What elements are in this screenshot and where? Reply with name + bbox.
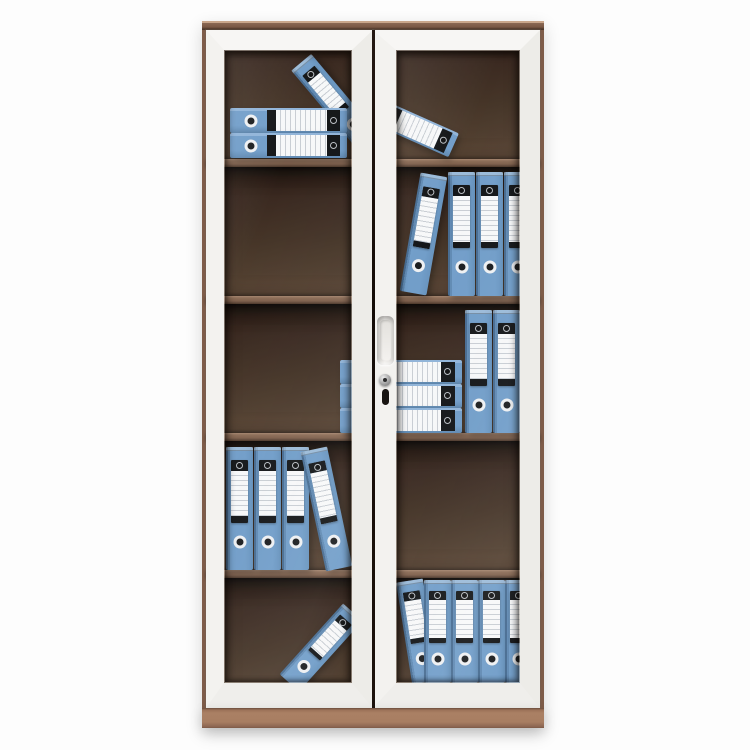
cabinet-top-trim	[202, 21, 544, 30]
product-photo-filing-cabinet	[0, 0, 750, 750]
door-gap-line	[372, 30, 375, 708]
keyhole-lock-icon	[379, 374, 391, 386]
left-door-frame	[206, 30, 373, 708]
keyhole-slot	[382, 389, 389, 405]
right-door-frame	[373, 30, 540, 708]
cabinet-base-plinth	[202, 708, 544, 728]
door-handle	[377, 316, 394, 365]
